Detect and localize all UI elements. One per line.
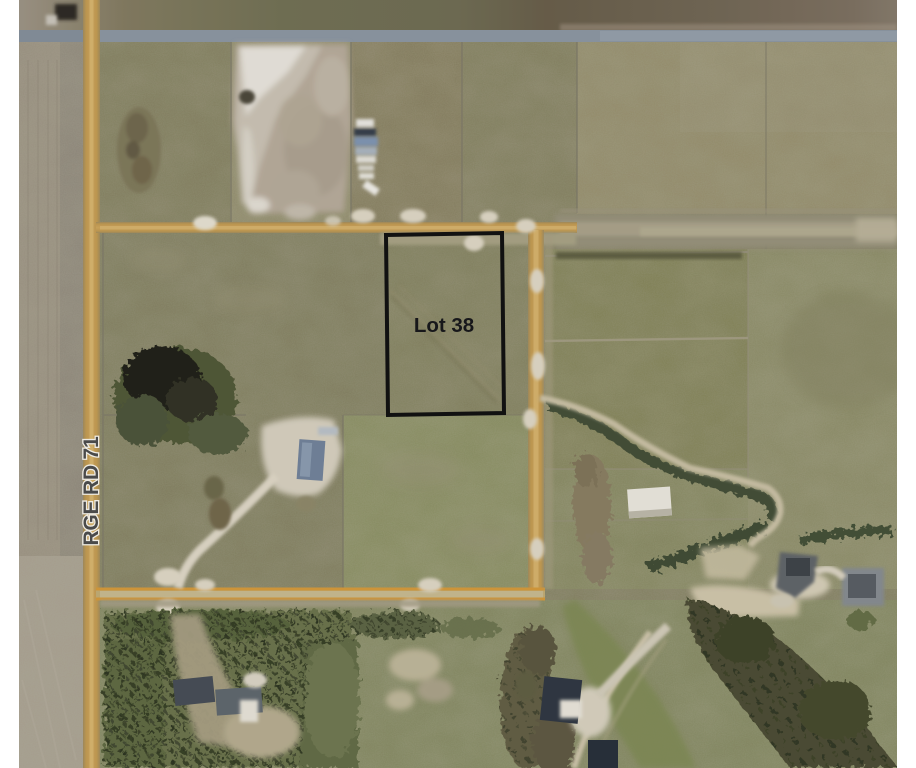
svg-text:Lot 38: Lot 38 (414, 314, 474, 337)
svg-text:RGE RD 71: RGE RD 71 (80, 436, 103, 546)
